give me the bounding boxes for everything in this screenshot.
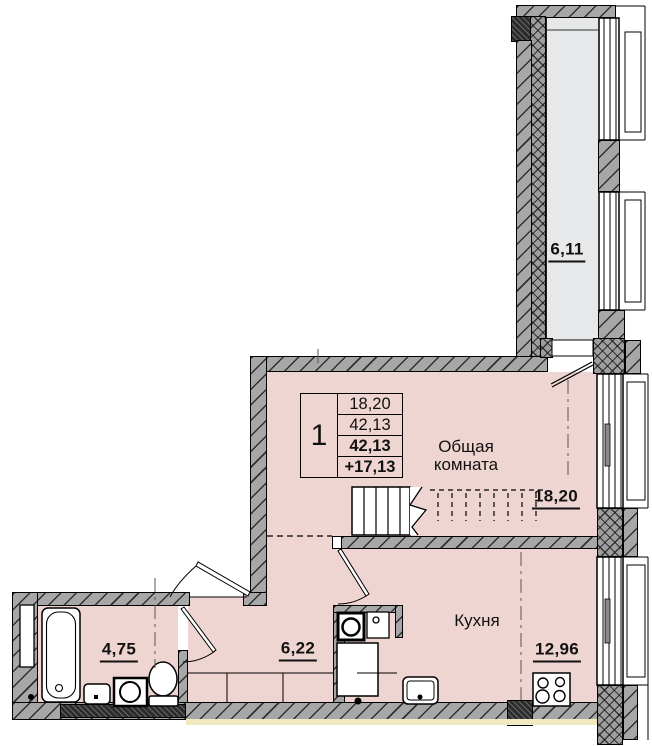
unit-area-row: +17,13 [338, 456, 402, 477]
stair-wall [341, 536, 598, 549]
right-wall-pier-mid-step [623, 508, 638, 557]
living-left-wall-foot [243, 592, 267, 606]
balcony-window-1 [599, 18, 619, 140]
unit-info-table: 1 18,20 42,13 42,13 +17,13 [300, 393, 403, 478]
kitchen-area-label: 12,96 [533, 640, 581, 663]
unit-number: 1 [301, 394, 338, 477]
unit-area-row: 42,13 [338, 414, 402, 435]
stair-wall-cap [332, 536, 342, 549]
living-room-label: Общая комната [434, 438, 498, 474]
bathroom-top-wall [12, 592, 190, 606]
bathroom-left-wall [12, 592, 38, 720]
balcony-left-wall-inner [530, 16, 546, 362]
corner-pier-step [625, 340, 641, 374]
right-wall-pier-bottom-step [623, 685, 638, 740]
kitchen-label: Кухня [454, 612, 500, 630]
plinth-strip [186, 719, 602, 725]
balcony-door-jamb [540, 338, 553, 358]
bathroom-bottom-dark-band [60, 704, 186, 718]
living-top-wall [250, 356, 548, 372]
unit-area-row: 42,13 [338, 435, 402, 456]
bathroom-area-label: 4,75 [100, 640, 138, 663]
right-wall-pier-bottom [597, 685, 623, 745]
living-area-label: 18,20 [532, 487, 580, 510]
window-living [597, 374, 623, 508]
unit-areas: 18,20 42,13 42,13 +17,13 [338, 394, 402, 477]
living-room-label-line2: комната [434, 456, 498, 474]
living-left-wall [250, 356, 267, 606]
bathroom-hall-wall [178, 650, 188, 703]
kitchen-counter-right-stub [395, 605, 403, 638]
kitchen-partition-wall [333, 605, 345, 703]
corner-pier-right [593, 338, 625, 374]
floor-plan: 1 18,20 42,13 42,13 +17,13 6,11 Общая ко… [0, 0, 652, 746]
unit-area-row: 18,20 [338, 394, 402, 414]
hallway-area-label: 6,22 [279, 639, 317, 662]
balcony-floor [546, 16, 601, 348]
balcony-window-2 [599, 192, 619, 310]
kitchen-counter-top-band [333, 605, 403, 613]
window-kitchen [597, 557, 623, 685]
right-wall-pier-mid [597, 508, 623, 557]
living-room-label-line1: Общая [434, 438, 498, 456]
hallway-upper-floor [267, 537, 332, 597]
balcony-area-label: 6,11 [548, 240, 585, 263]
balcony-left-wall-outer [516, 40, 532, 362]
balcony-window-pier-mid [598, 140, 620, 192]
